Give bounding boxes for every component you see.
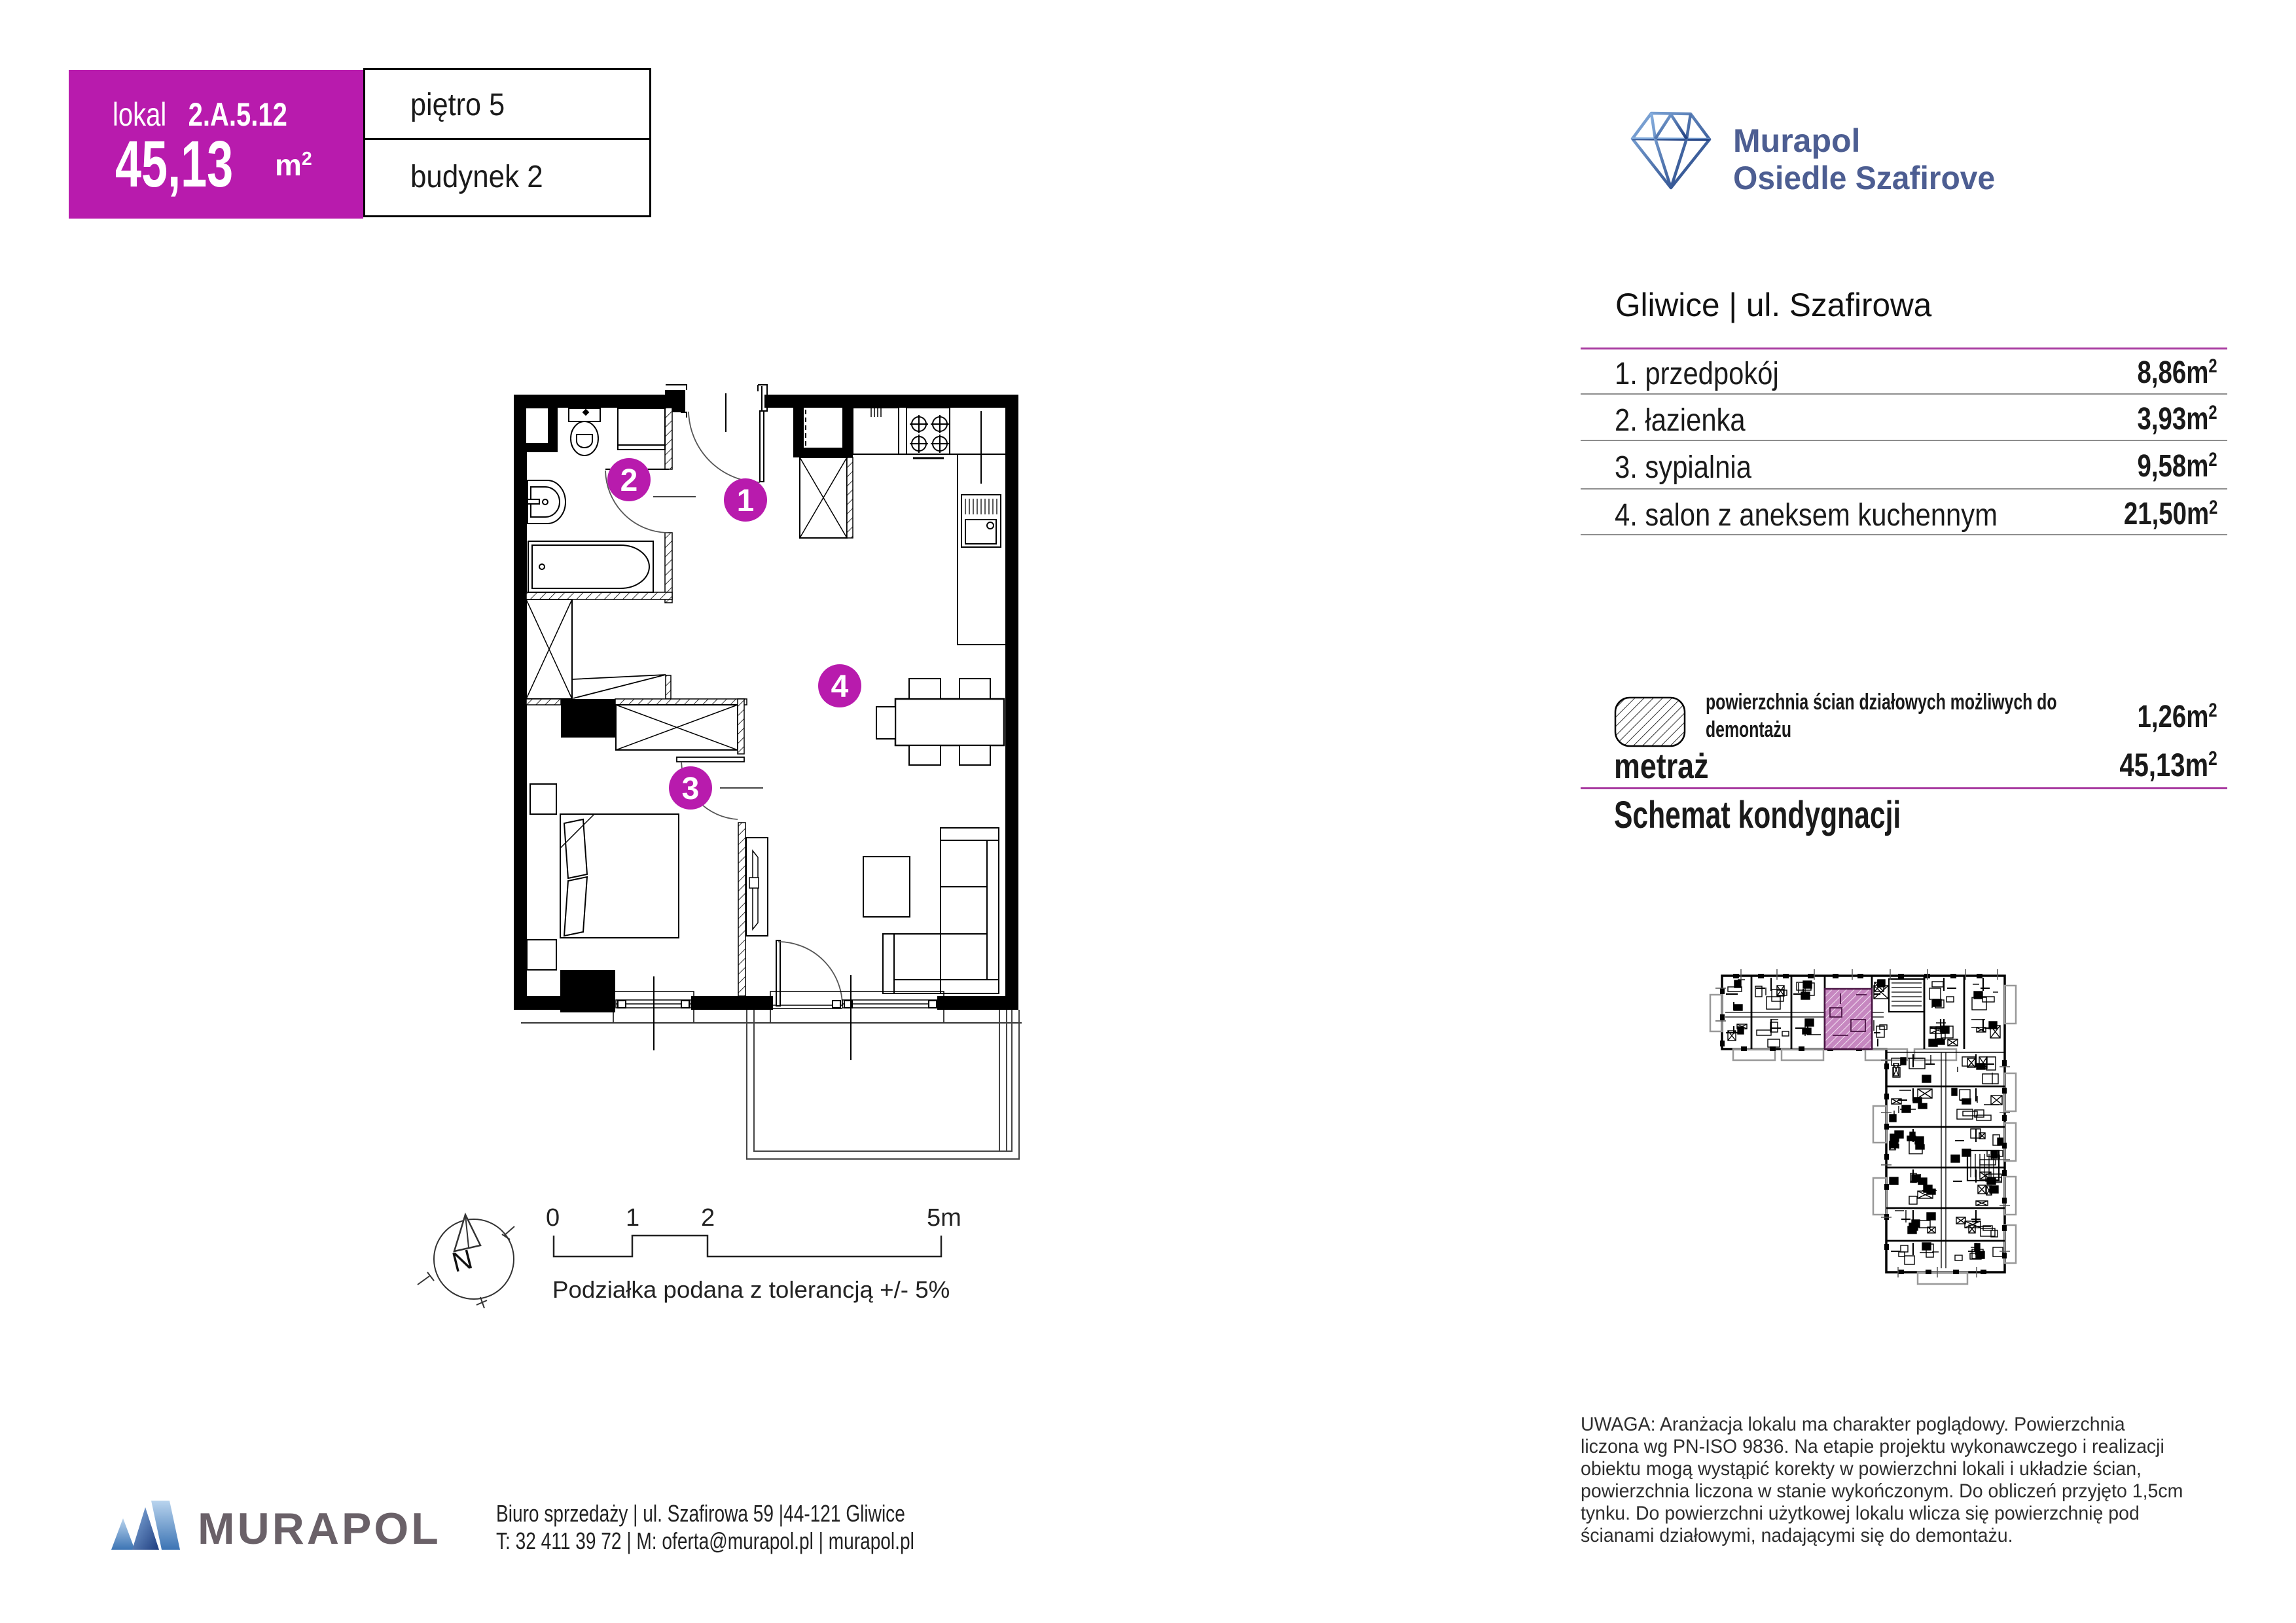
svg-text:4: 4	[831, 669, 849, 704]
svg-text:2: 2	[620, 463, 638, 498]
svg-text:1: 1	[737, 484, 755, 518]
svg-text:N: N	[449, 1243, 476, 1278]
svg-text:3: 3	[682, 772, 700, 806]
